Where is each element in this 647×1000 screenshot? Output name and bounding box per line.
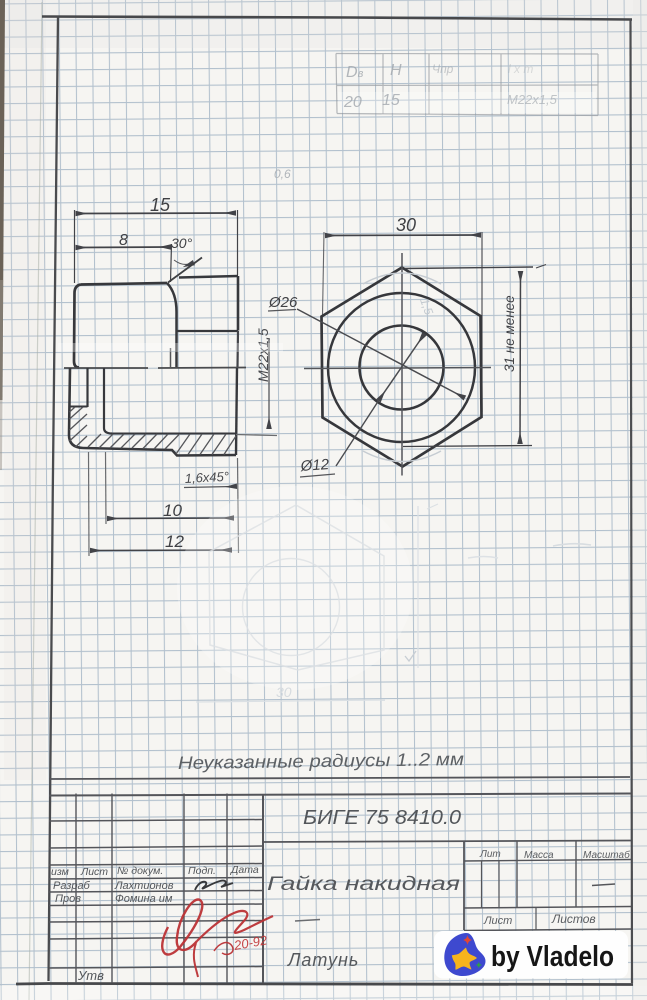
svg-text:0,6: 0,6 [274,167,291,181]
svg-text:Неуказанные радиусы 1..2 мм: Неуказанные радиусы 1..2 мм [178,749,464,773]
svg-text:Лист: Лист [483,915,512,927]
svg-text:10: 10 [163,501,182,520]
svg-text:БИГЕ 75 8410.0: БИГЕ 75 8410.0 [303,807,461,829]
svg-text:Масса: Масса [524,850,554,861]
svg-text:31 не менее: 31 не менее [502,295,517,372]
svg-text:l x m: l x m [508,62,533,76]
svg-text:30: 30 [276,684,292,700]
svg-text:Подп.: Подп. [188,865,216,877]
svg-text:Дата: Дата [230,864,259,876]
svg-text:15: 15 [150,195,171,215]
svg-text:30°: 30° [171,235,193,251]
svg-text:Листов: Листов [551,912,596,926]
svg-text:Ø12: Ø12 [299,456,330,475]
svg-text:Пров: Пров [55,893,81,905]
svg-text:8: 8 [119,232,128,249]
svg-text:Лист: Лист [80,866,108,878]
svg-text:20: 20 [343,94,362,111]
svg-text:Н: Н [390,62,402,79]
svg-text:№ докум.: № докум. [117,865,163,877]
svg-text:Масштаб: Масштаб [583,849,630,861]
svg-text:Лит: Лит [479,849,501,860]
svg-text:1,6х45°: 1,6х45° [184,469,229,486]
svg-text:Ø26: Ø26 [268,294,298,311]
svg-text:Утв: Утв [77,968,104,983]
svg-text:изм: изм [51,866,69,878]
svg-text:Гайка накидная: Гайка накидная [267,874,460,895]
svg-text:Разраб: Разраб [53,880,91,892]
svg-text:Латунь: Латунь [287,950,359,970]
svg-text:Лахтионов: Лахтионов [114,880,174,892]
svg-text:Фомина им: Фомина им [115,893,173,905]
svg-text:30: 30 [396,215,416,235]
svg-text:Чпр: Чпр [432,62,454,76]
svg-text:М22х1,5: М22х1,5 [255,328,271,382]
svg-text:М22х1,5: М22х1,5 [507,92,558,107]
svg-text:15: 15 [382,92,400,109]
svg-text:by Vladelo: by Vladelo [491,941,614,973]
svg-text:12: 12 [165,532,184,551]
